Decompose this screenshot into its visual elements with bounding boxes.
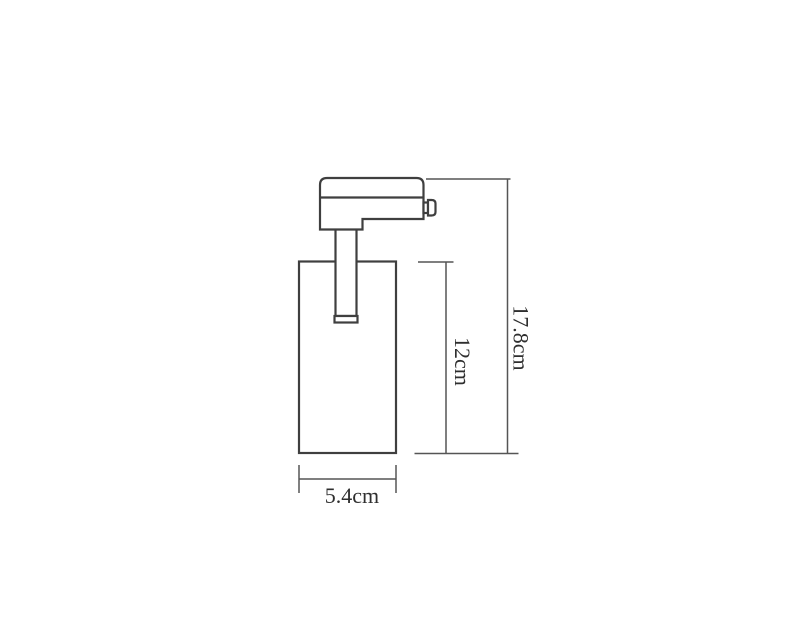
body-height-label: 12cm bbox=[450, 337, 475, 386]
knob-head bbox=[428, 200, 436, 216]
stem-end-band bbox=[335, 316, 358, 323]
track-light-dimension-drawing: 17.8cm 12cm 5.4cm bbox=[0, 0, 800, 639]
dimension-body-height bbox=[418, 262, 454, 454]
dimension-diagram: 17.8cm 12cm 5.4cm bbox=[0, 0, 800, 639]
dimension-overall-height bbox=[426, 179, 511, 454]
adjustment-knob bbox=[424, 200, 436, 216]
body-width-label: 5.4cm bbox=[325, 483, 379, 508]
stem-outline bbox=[336, 230, 357, 317]
overall-height-label: 17.8cm bbox=[509, 305, 534, 370]
track-adapter-outline bbox=[320, 178, 424, 230]
